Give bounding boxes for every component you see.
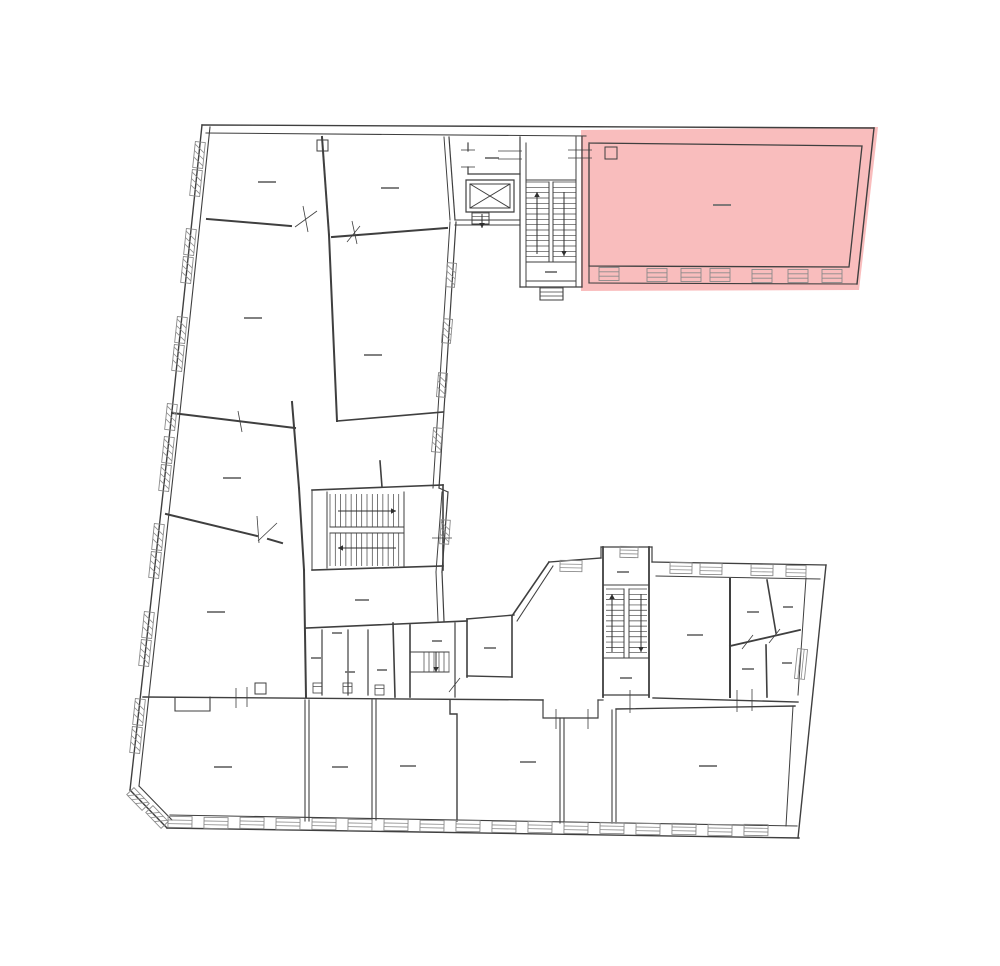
wall <box>130 125 202 790</box>
window-sill <box>564 822 588 833</box>
wall <box>798 565 826 838</box>
direction-arrow <box>638 594 644 652</box>
wall <box>329 235 337 421</box>
window-sill <box>420 820 444 831</box>
window-hatch <box>139 640 152 667</box>
window-hatch <box>142 612 155 639</box>
wall <box>436 492 442 572</box>
stair-flight <box>472 213 489 224</box>
wall <box>143 697 543 700</box>
column-square <box>255 683 266 694</box>
wall <box>450 700 457 821</box>
window-sill <box>751 564 773 575</box>
window-sill <box>240 817 264 828</box>
wall <box>444 137 450 220</box>
window-hatch <box>190 170 203 197</box>
wall <box>166 514 257 536</box>
wall <box>436 572 438 621</box>
window-sill <box>312 818 336 829</box>
window-hatch <box>127 788 149 811</box>
columns-layer <box>255 140 617 694</box>
window-sill <box>204 817 228 828</box>
window-hatch <box>184 229 197 256</box>
window-sill <box>384 819 408 830</box>
door-mark <box>352 221 357 244</box>
window-sill <box>560 560 582 571</box>
wall <box>549 558 601 562</box>
window-sill <box>744 824 768 835</box>
window-sill <box>492 821 516 832</box>
wall <box>206 133 586 136</box>
wall <box>467 676 512 677</box>
window-sill <box>700 563 722 574</box>
wall <box>543 700 598 718</box>
window-hatch <box>146 806 168 829</box>
wall <box>167 828 799 838</box>
wall <box>322 137 329 235</box>
wall <box>202 125 874 128</box>
door-mark <box>295 211 317 227</box>
window-sill <box>276 818 300 829</box>
stair-flight <box>629 589 647 658</box>
window-sill <box>670 562 692 573</box>
wall <box>337 412 443 421</box>
window-sill <box>786 565 806 576</box>
wall <box>472 212 489 224</box>
wall <box>380 461 382 487</box>
window-sill <box>348 819 372 830</box>
wall <box>540 287 563 300</box>
wall <box>312 566 443 570</box>
direction-arrow <box>479 214 485 228</box>
stair-flight <box>606 589 624 658</box>
floor-plan-page <box>0 0 1000 966</box>
stair-flight <box>540 288 563 300</box>
window-hatch <box>440 520 451 545</box>
door-mark <box>303 206 308 232</box>
wc-fixture <box>375 685 384 695</box>
wall <box>766 645 767 697</box>
window-hatch <box>133 699 146 726</box>
window-sill <box>600 822 624 833</box>
window-hatch <box>162 437 175 464</box>
wall <box>767 580 776 633</box>
wall <box>786 706 793 826</box>
window-hatch <box>149 552 162 579</box>
window-sill <box>708 824 732 835</box>
direction-arrow <box>609 594 615 652</box>
window-sill <box>620 546 638 557</box>
wall <box>306 621 467 628</box>
wall <box>175 697 210 711</box>
window-hatch <box>152 524 165 551</box>
wall <box>653 698 798 702</box>
window-sill <box>528 821 552 832</box>
wall <box>299 488 304 570</box>
window-sill <box>672 823 696 834</box>
wall <box>312 485 443 490</box>
window-hatch <box>181 257 194 284</box>
window-sill <box>168 816 192 827</box>
wall <box>730 630 800 646</box>
wall <box>172 413 295 428</box>
wall <box>292 402 299 488</box>
floor-plan-drawing <box>0 0 1000 966</box>
wall <box>207 219 291 226</box>
window-sill <box>456 820 480 831</box>
wall <box>139 127 210 786</box>
wall <box>616 706 795 709</box>
wall <box>393 623 395 697</box>
wc-fixture <box>313 683 322 693</box>
wall <box>467 615 514 619</box>
window-hatch <box>445 263 456 288</box>
wall <box>512 562 549 616</box>
wall <box>517 566 553 621</box>
wall <box>304 570 306 697</box>
direction-arrow <box>561 192 567 256</box>
door-mark <box>257 516 259 543</box>
window-hatch <box>159 465 172 492</box>
wall <box>442 572 444 621</box>
wall <box>268 539 282 543</box>
window-hatch <box>193 142 206 169</box>
direction-arrow <box>534 192 540 254</box>
wall <box>449 137 455 220</box>
wall <box>332 228 447 237</box>
window-sill <box>636 823 660 834</box>
